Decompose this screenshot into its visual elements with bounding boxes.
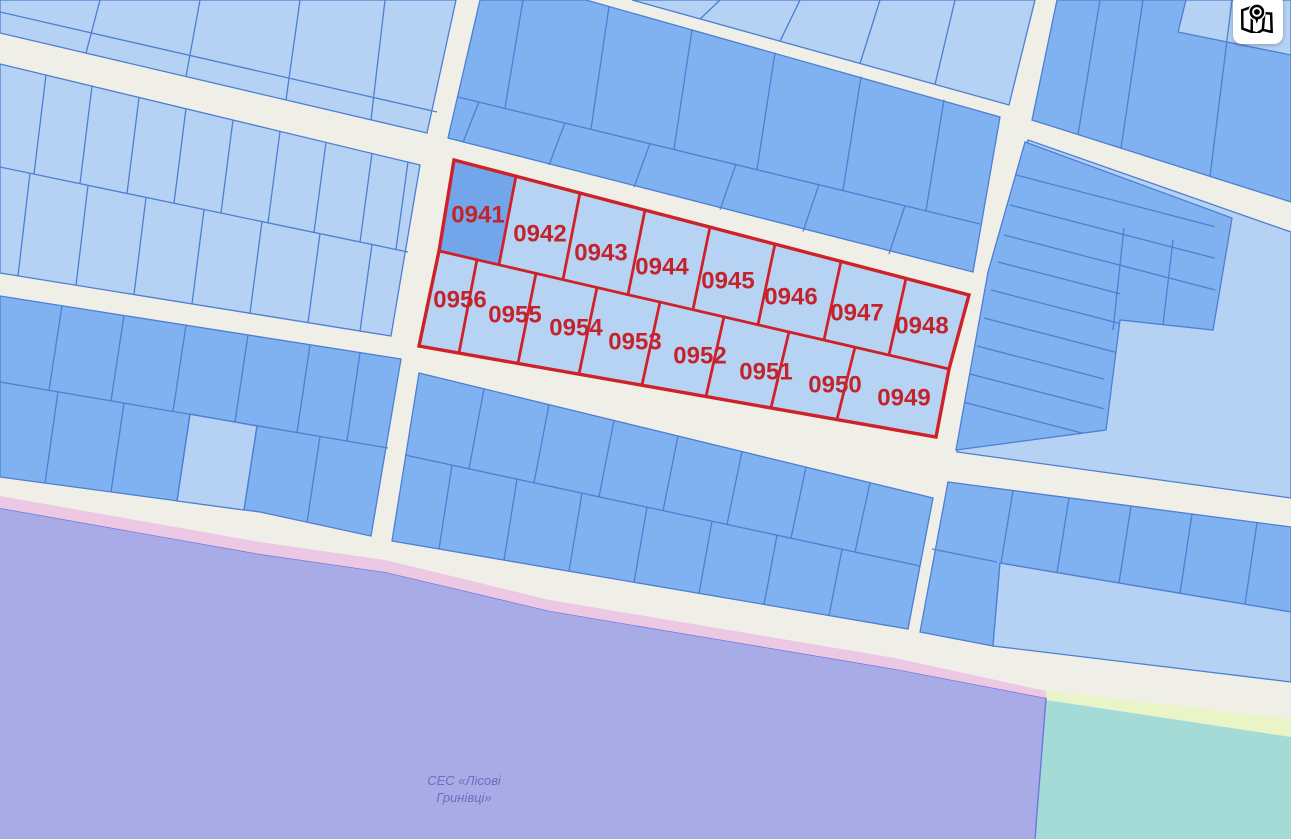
svg-text:Гринівці»: Гринівці» (436, 790, 491, 805)
svg-text:0949: 0949 (877, 385, 930, 412)
svg-text:0956: 0956 (433, 287, 486, 314)
svg-text:СЕС «Лісові: СЕС «Лісові (427, 773, 502, 788)
svg-text:0945: 0945 (701, 268, 754, 295)
svg-text:0954: 0954 (549, 315, 603, 342)
svg-text:0950: 0950 (808, 372, 861, 399)
svg-text:0948: 0948 (895, 313, 948, 340)
svg-text:0955: 0955 (488, 302, 541, 329)
svg-text:0946: 0946 (764, 284, 817, 311)
svg-text:0953: 0953 (608, 329, 661, 356)
svg-text:0943: 0943 (574, 240, 627, 267)
svg-text:0942: 0942 (513, 221, 566, 248)
svg-text:0947: 0947 (830, 300, 883, 327)
svg-text:0944: 0944 (635, 254, 689, 281)
svg-text:0951: 0951 (739, 359, 792, 386)
svg-text:0941: 0941 (451, 202, 504, 229)
svg-text:0952: 0952 (673, 343, 726, 370)
